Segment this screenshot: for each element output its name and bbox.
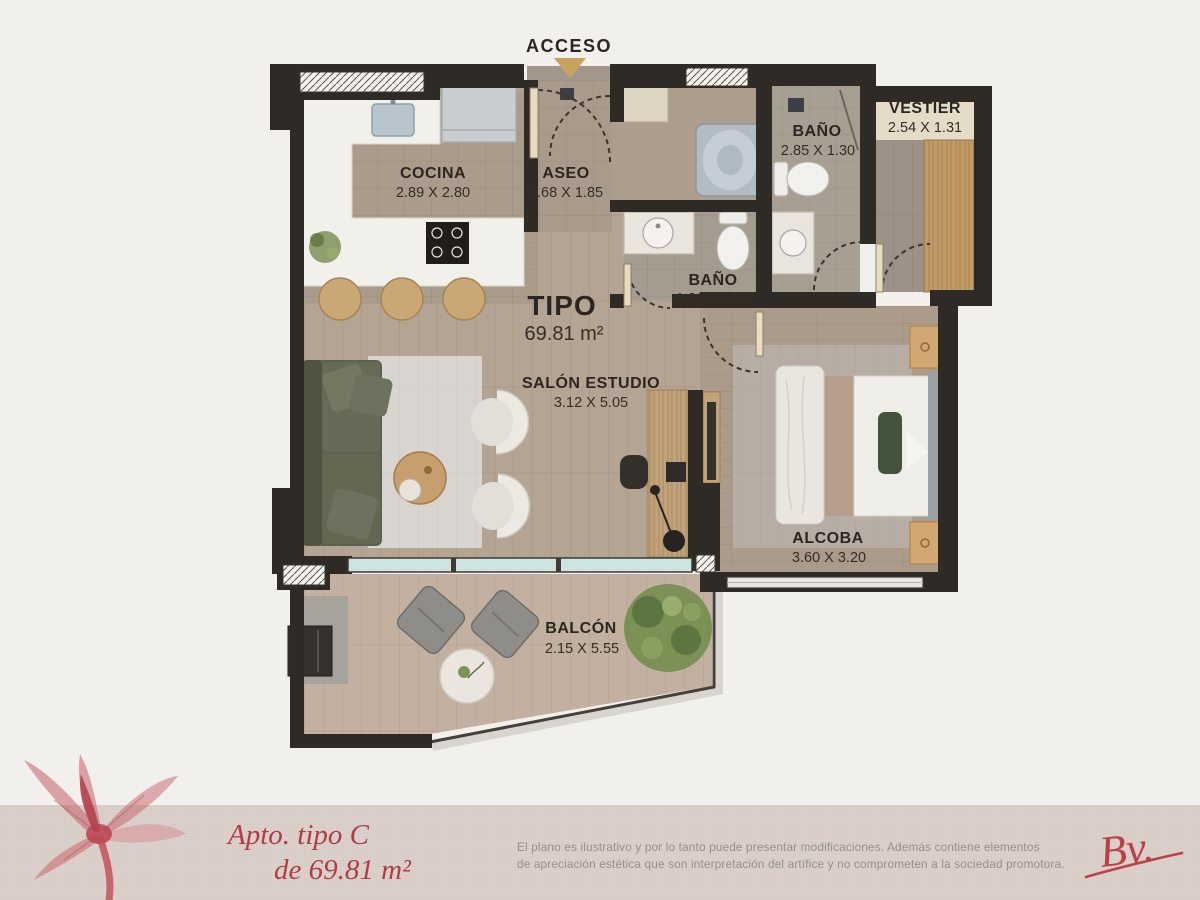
room-label-aseo: ASEO xyxy=(542,165,589,182)
room-dims-aseo: 1.68 X 1.85 xyxy=(529,185,603,201)
nightstand xyxy=(910,326,940,368)
disclaimer-line1: El plano es ilustrativo y por lo tanto p… xyxy=(517,839,1077,856)
fridge xyxy=(442,86,516,142)
room-label-vestier: VESTIER xyxy=(889,100,961,117)
room-dims-vestier: 2.54 X 1.31 xyxy=(888,120,962,136)
type-area: 69.81 m² xyxy=(525,323,604,345)
kitchen-sink xyxy=(372,104,414,136)
tv-unit xyxy=(703,392,720,483)
brand-logo: Bv. xyxy=(1078,813,1188,893)
counter-plant xyxy=(309,231,341,263)
room-dims-cocina: 2.89 X 2.80 xyxy=(396,185,470,201)
sliding-glass-door xyxy=(348,558,692,572)
bedroom-window xyxy=(727,577,923,588)
sofa xyxy=(302,360,394,546)
balcony-table xyxy=(440,649,494,703)
room-dims-bano-principal: 2.85 X 1.30 xyxy=(781,143,855,159)
brand-logo-text: Bv. xyxy=(1097,822,1157,877)
room-label-salon: SALÓN ESTUDIO xyxy=(522,373,660,392)
room-dims-bano: 1.26 X 1.85 xyxy=(676,291,750,307)
room-label-bano: BAÑO xyxy=(688,269,737,289)
room-dims-balcon: 2.15 X 5.55 xyxy=(545,641,619,657)
room-label-cocina: COCINA xyxy=(400,165,466,182)
bed xyxy=(776,366,940,524)
bar-stools xyxy=(319,278,485,320)
room-label-bano-principal: BAÑO xyxy=(792,120,841,140)
toilet xyxy=(774,162,829,196)
room-label-balcon: BALCÓN xyxy=(545,618,616,637)
floorplan-page: ACCESO COCINA 2.89 X 2.80 ASEO 1.68 X 1.… xyxy=(0,0,1200,900)
nightstand xyxy=(910,522,940,564)
flower-illustration xyxy=(0,750,224,900)
shower-head-icon xyxy=(788,98,804,112)
disclaimer-line2: de apreciación estética que son interpre… xyxy=(517,856,1077,873)
type-label: TIPO xyxy=(527,290,596,321)
coffee-table xyxy=(394,452,446,504)
unit-type-line2: de 69.81 m² xyxy=(274,855,411,887)
shower-head-icon xyxy=(560,88,574,100)
stove xyxy=(426,222,469,264)
vestier-closet xyxy=(924,140,974,292)
floor-plan: ACCESO COCINA 2.89 X 2.80 ASEO 1.68 X 1.… xyxy=(0,0,1200,780)
toilet xyxy=(717,212,749,270)
office-chair xyxy=(620,455,648,489)
disclaimer-text: El plano es ilustrativo y por lo tanto p… xyxy=(517,839,1077,873)
bathroom-sink xyxy=(624,212,694,254)
pillow xyxy=(878,412,902,474)
room-dims-alcoba: 3.60 X 3.20 xyxy=(792,550,866,566)
room-label-alcoba: ALCOBA xyxy=(792,530,863,547)
bedroom xyxy=(703,326,940,564)
balcony-plant xyxy=(624,584,712,672)
unit-type-label: Apto. tipo C de 69.81 m² xyxy=(228,820,411,887)
bathroom-sink xyxy=(772,212,814,274)
room-dims-salon: 3.12 X 5.05 xyxy=(554,395,628,411)
access-label: ACCESO xyxy=(526,36,612,56)
unit-type-line1: Apto. tipo C xyxy=(228,820,411,852)
desk xyxy=(648,390,688,557)
washing-machine xyxy=(696,124,764,196)
